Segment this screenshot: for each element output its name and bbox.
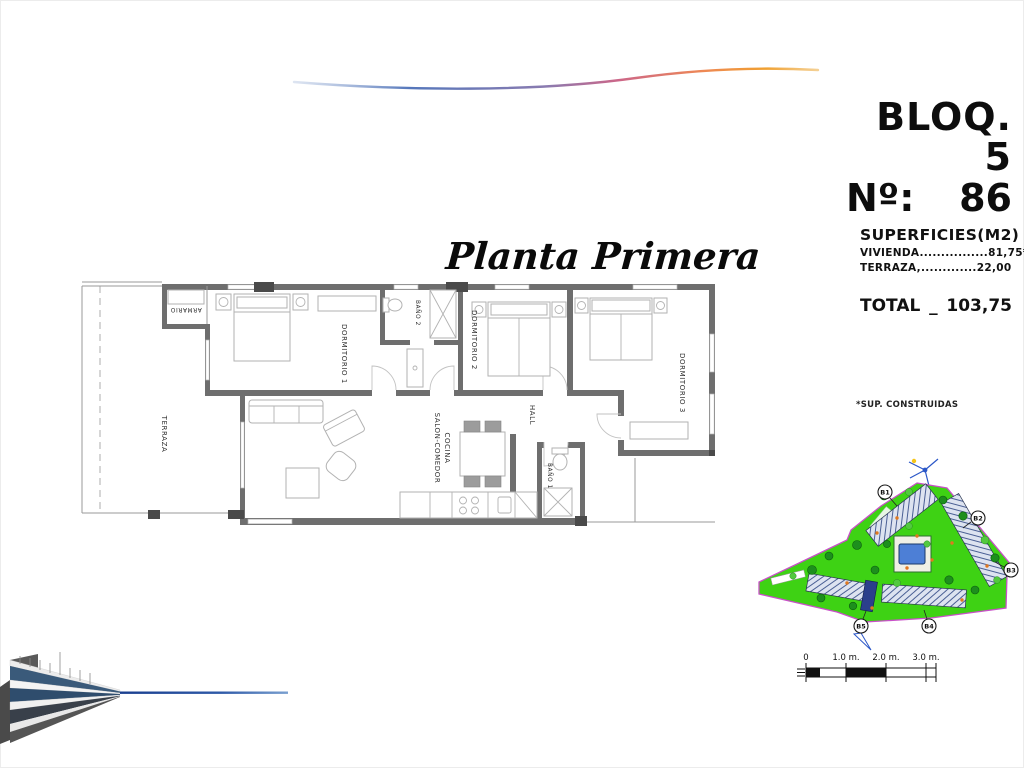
svg-text:B4: B4 [924,623,934,631]
room-label-bano1: BAÑO 1 [546,463,553,489]
site-plan: B1 B2 B3 B4 B5 [757,448,1023,658]
scale-tick-3: 3.0 m. [912,653,939,663]
armario-interior [168,290,204,304]
scale-bar: 0 1.0 m. 2.0 m. 3.0 m. [793,648,953,693]
blue-rule-line [120,692,288,694]
scale-tick-0: 0 [803,653,808,663]
surfaces-heading: SUPERFICIES(M2) [860,226,1020,244]
room-label-dormitorio3: DORMITORIO 3 [678,353,686,413]
room-label-dormitorio1: DORMITORIO 1 [340,324,348,384]
room-label-hall: HALL [528,405,536,425]
scale-bar-graphic [797,663,936,682]
svg-text:B1: B1 [880,489,890,497]
dorm2-furniture [472,302,566,376]
dorm3-furniture [575,298,688,439]
room-label-bano2: BAÑO 2 [414,300,421,326]
surfaces-total: TOTAL_103,75 [860,296,1012,316]
floor-plan-drawing: TERRAZA ARMARIO DORMITORIO 1 BAÑO 2 DORM… [78,276,723,534]
surface-row-vivienda: VIVIENDA................81,75* [860,247,1020,259]
room-label-dormitorio2: DORMITORIO 2 [470,310,478,370]
unit-number-label: Nº: [846,178,914,220]
svg-text:B2: B2 [973,515,982,523]
svg-text:B5: B5 [856,623,866,631]
surfaces-footnote: *SUP. CONSTRUIDAS [856,400,958,410]
building-render [0,640,292,768]
room-label-armario: ARMARIO [170,306,201,312]
dorm1-furniture [216,294,376,361]
living-room-furniture [249,400,505,498]
scale-tick-2: 2.0 m. [872,653,899,663]
room-label-cocina: COCINA [443,433,451,464]
gradient-swoosh-line [286,58,826,104]
unit-number-value: 86 [959,178,1012,220]
room-label-terraza: TERRAZA [160,415,168,453]
surface-row-terraza: TERRAZA,.............22,00 [860,262,1020,274]
unit-header: BLOQ. 5 Nº: 86 [846,98,1012,220]
surfaces-panel: SUPERFICIES(M2) VIVIENDA................… [860,226,1020,316]
floor-title: Planta Primera [444,234,727,278]
compass-icon [909,459,938,486]
room-label-salon-comedor: SALON-COMEDOR [433,413,441,484]
kitchen-fixtures [400,492,537,518]
scale-tick-1: 1.0 m. [832,653,859,663]
svg-text:B3: B3 [1006,567,1015,575]
block-label: BLOQ. 5 [846,98,1012,178]
plan-sheet: BLOQ. 5 Nº: 86 Planta Primera SUPERFICIE… [0,0,1024,768]
